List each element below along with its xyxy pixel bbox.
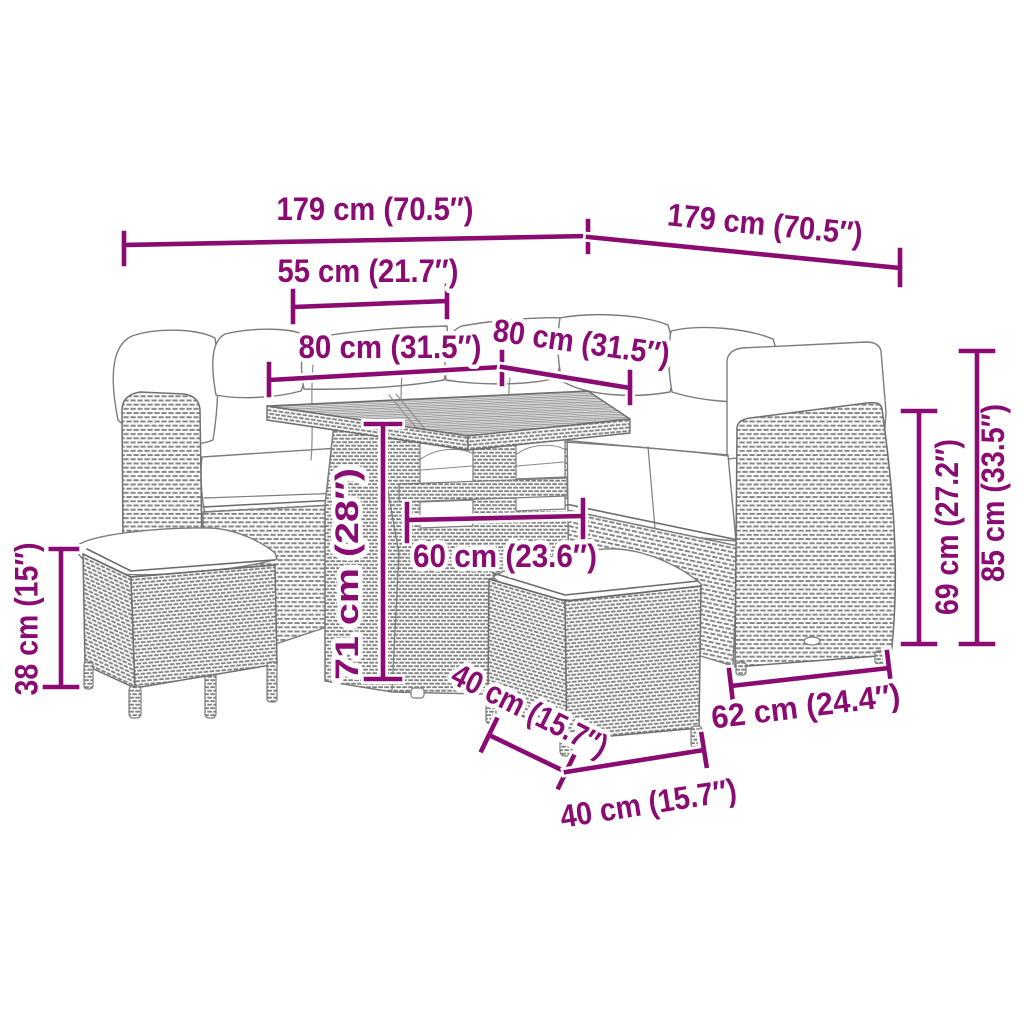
svg-text:38 cm (15″): 38 cm (15″) (9, 543, 45, 696)
svg-text:179 cm (70.5″): 179 cm (70.5″) (277, 191, 474, 227)
svg-text:55 cm (21.7″): 55 cm (21.7″) (278, 253, 459, 289)
svg-text:60 cm (23.6″): 60 cm (23.6″) (413, 538, 597, 574)
svg-text:85 cm (33.5″): 85 cm (33.5″) (975, 404, 1011, 582)
svg-text:80 cm (31.5″): 80 cm (31.5″) (299, 329, 482, 365)
svg-text:71 cm (28″): 71 cm (28″) (329, 468, 365, 680)
svg-text:69 cm (27.2″): 69 cm (27.2″) (929, 439, 965, 615)
